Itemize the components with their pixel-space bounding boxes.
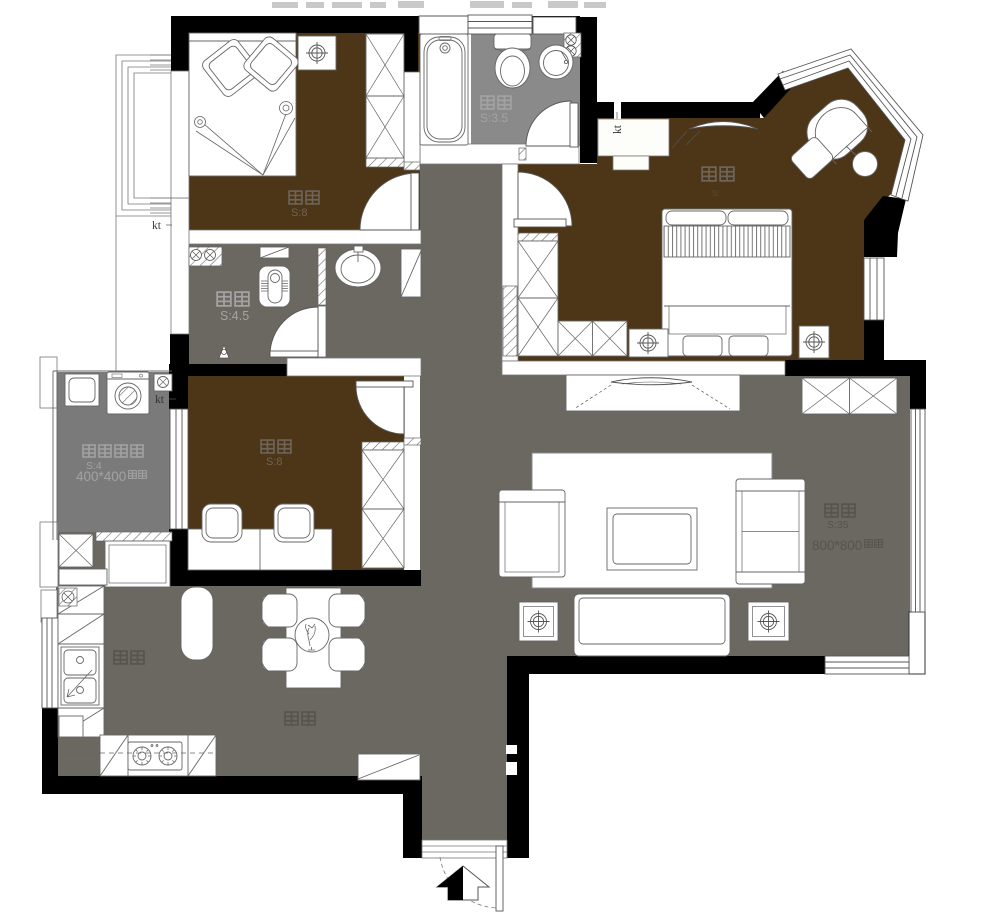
svg-text:S:35: S:35 [827,519,849,531]
svg-text:S:8: S:8 [291,207,308,219]
svg-text:kt: kt [612,124,624,134]
svg-text:kt: kt [152,220,162,232]
svg-text:S:: S: [712,189,720,198]
svg-text:800*800: 800*800 [812,538,862,553]
svg-text:S:3.5: S:3.5 [480,111,508,125]
svg-text:kt: kt [155,394,165,406]
svg-text:S:8: S:8 [266,456,283,468]
svg-text:400*400: 400*400 [76,469,126,484]
svg-text:S:4.5: S:4.5 [220,309,249,323]
